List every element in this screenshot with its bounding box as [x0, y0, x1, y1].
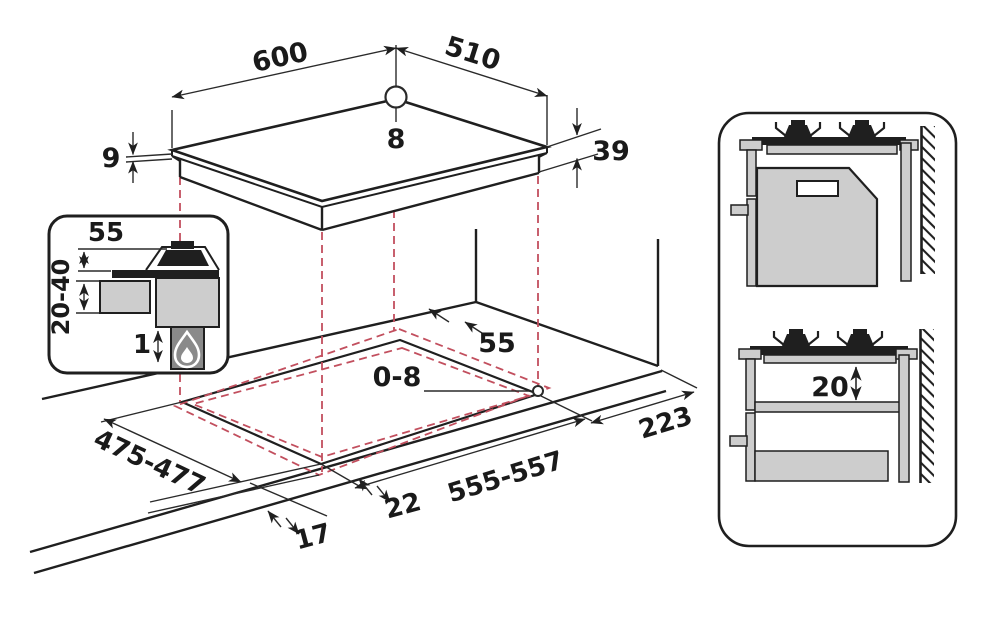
cabinet-side-right-top: [901, 143, 911, 281]
separator-shelf: [755, 402, 902, 412]
worktop-front-bottom-edge: [34, 391, 666, 573]
label-min-gap: 1: [133, 330, 151, 360]
label-hob-depth: 510: [441, 31, 504, 78]
cabinet-side-right-bottom: [899, 355, 909, 482]
hob-glass-side-bottom: [750, 346, 908, 355]
detail-inset: 55 20-40 1: [47, 216, 228, 373]
label-overlap-22: 22: [382, 487, 425, 525]
label-hole-diameter: 8: [387, 124, 406, 155]
cabinet-screw-tab-bottom: [730, 436, 747, 446]
cabinet-side-upper-b: [746, 359, 755, 410]
hob-isometric-view: [172, 99, 547, 230]
fixing-clamp-left-top: [740, 140, 762, 150]
burner-cap: [157, 250, 209, 266]
hob-glass-section: [112, 270, 219, 278]
gas-inlet-circle: [386, 87, 407, 108]
inner-footprint-dashed: [193, 348, 529, 457]
diagram-canvas: 55 0-8 223 475-477 555-557 22 17: [0, 0, 1000, 621]
side-view-over-oven: [731, 120, 935, 286]
wall-hatching-top: [922, 126, 935, 274]
label-overlap-17: 17: [292, 518, 335, 556]
side-view-over-drawer: 20: [730, 329, 934, 483]
wall-hatching-bottom: [921, 329, 934, 483]
fixing-clamp-left-bottom: [739, 349, 761, 359]
label-cabinet-clearance: 20-40: [47, 259, 75, 336]
label-cutout-rear-clearance: 55: [478, 328, 516, 359]
oven-vent: [797, 181, 838, 196]
side-installation-panel: 20: [719, 113, 956, 546]
label-shelf-clearance: 20: [811, 372, 849, 403]
label-cutout-depth: 475-477: [89, 424, 210, 502]
worktop-strip-bottom: [764, 355, 896, 363]
hole-marker: [533, 386, 543, 396]
label-hole-position: 0-8: [373, 362, 422, 393]
adjacent-cabinet-section: [100, 281, 150, 313]
burner-cap-top: [171, 241, 194, 249]
label-right-clearance: 223: [635, 401, 696, 446]
hob-glass-side-top: [752, 137, 906, 145]
cabinet-side-upper: [747, 150, 756, 196]
projection-dashed-lines: [175, 176, 549, 475]
label-body-height: 39: [592, 136, 630, 167]
drawer: [755, 451, 888, 481]
installation-diagram: 55 0-8 223 475-477 555-557 22 17: [0, 0, 1000, 621]
label-glass-thickness: 9: [102, 143, 121, 174]
cabinet-screw-tab-top: [731, 205, 748, 215]
cabinet-side-lower-b: [746, 413, 755, 481]
worktop-strip-top: [767, 145, 897, 154]
label-burner-height: 55: [88, 218, 124, 248]
label-hob-width: 600: [249, 36, 311, 78]
hob-body-section: [156, 278, 219, 327]
